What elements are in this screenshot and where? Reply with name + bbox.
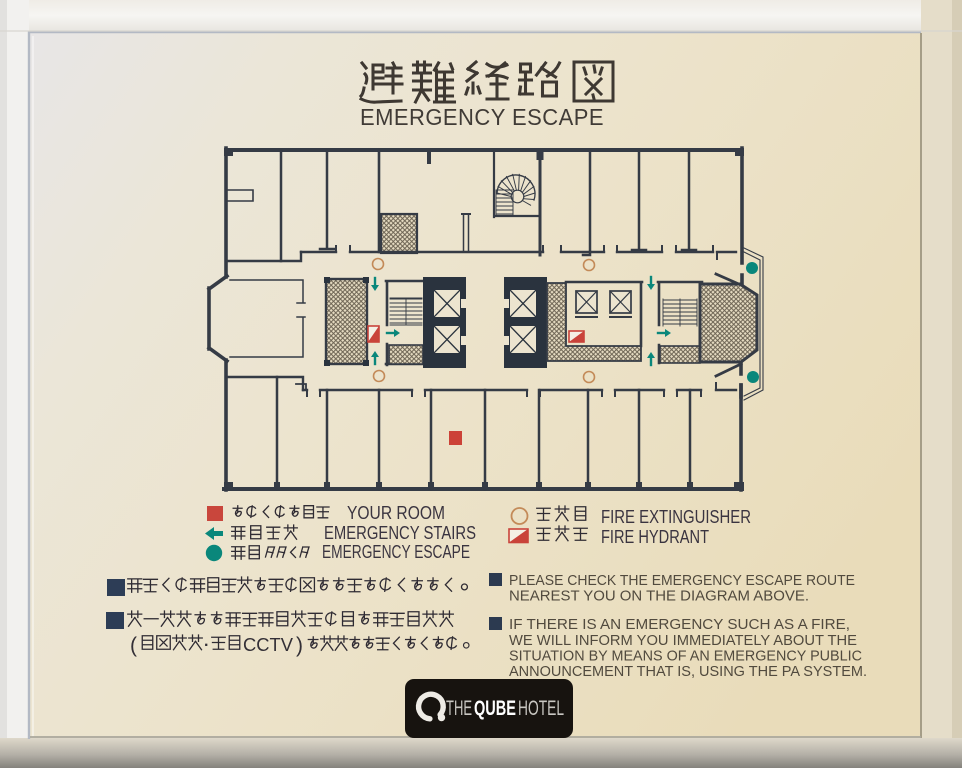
svg-text:NEAREST YOU ON THE DIAGRAM ABO: NEAREST YOU ON THE DIAGRAM ABOVE. bbox=[509, 589, 809, 605]
svg-text:QUBE: QUBE bbox=[474, 697, 516, 720]
svg-text:ANNOUNCEMENT THAT IS, USING TH: ANNOUNCEMENT THAT IS, USING THE PA SYSTE… bbox=[509, 664, 867, 680]
svg-text:(: ( bbox=[130, 634, 137, 657]
svg-text:): ) bbox=[296, 634, 303, 657]
svg-text:PLEASE CHECK THE EMERGENCY ESC: PLEASE CHECK THE EMERGENCY ESCAPE ROUTE bbox=[509, 573, 855, 589]
svg-text:IF THERE IS AN EMERGENCY SUCH: IF THERE IS AN EMERGENCY SUCH AS A FIRE, bbox=[509, 617, 850, 633]
svg-text:FIRE HYDRANT: FIRE HYDRANT bbox=[601, 527, 709, 547]
svg-text:WE WILL INFORM YOU IMMEDIATELY: WE WILL INFORM YOU IMMEDIATELY ABOUT THE bbox=[509, 633, 857, 649]
svg-text:YOUR ROOM: YOUR ROOM bbox=[347, 503, 445, 523]
svg-text:·: · bbox=[204, 637, 209, 654]
svg-text:SITUATION BY MEANS OF AN EMERG: SITUATION BY MEANS OF AN EMERGENCY PUBLI… bbox=[509, 649, 862, 665]
svg-text:EMERGENCY ESCAPE: EMERGENCY ESCAPE bbox=[322, 542, 470, 562]
svg-text:EMERGENCY STAIRS: EMERGENCY STAIRS bbox=[324, 523, 476, 543]
svg-text:HOTEL: HOTEL bbox=[518, 697, 564, 720]
svg-text:CCTV: CCTV bbox=[243, 634, 294, 655]
svg-text:THE: THE bbox=[446, 697, 472, 720]
svg-text:EMERGENCY ESCAPE: EMERGENCY ESCAPE bbox=[360, 104, 604, 130]
svg-text:FIRE EXTINGUISHER: FIRE EXTINGUISHER bbox=[601, 507, 751, 527]
